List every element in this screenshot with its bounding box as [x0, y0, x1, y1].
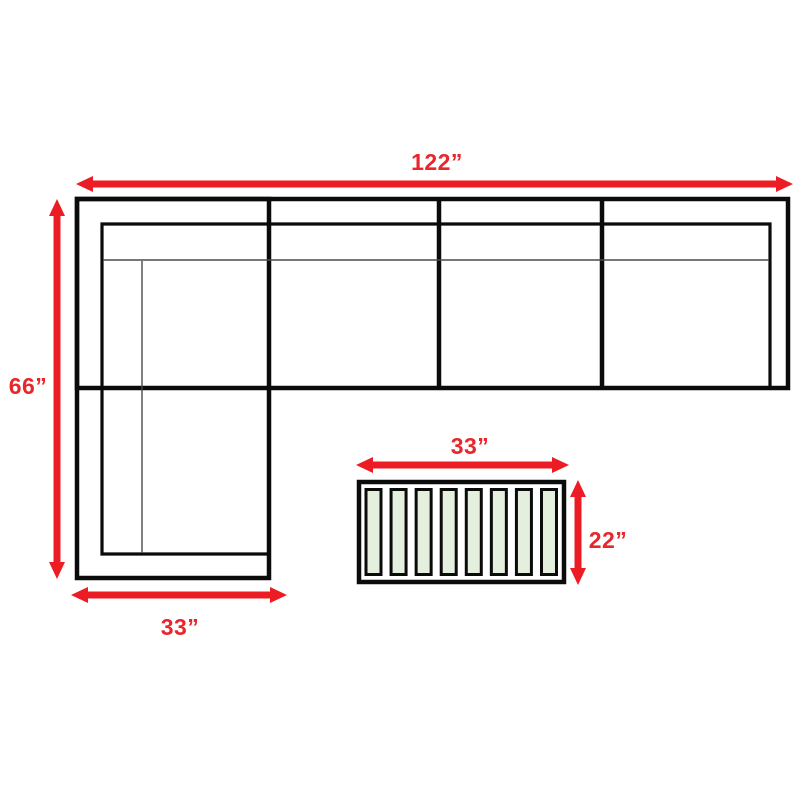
table-slat [366, 490, 381, 575]
arrow-head-right-icon [776, 176, 793, 192]
table-slat [466, 490, 481, 575]
sofa-body-outline [77, 199, 788, 388]
table-slat [416, 490, 431, 575]
arrow-head-right-icon [552, 457, 569, 473]
sofa-depth-label: 66” [2, 373, 54, 399]
table-slat [491, 490, 506, 575]
coffee-table [359, 482, 564, 582]
arrow-head-down-icon [570, 568, 586, 585]
arrow-head-left-icon [71, 587, 88, 603]
arrow-head-down-icon [49, 562, 65, 579]
furniture-dimension-diagram: 122” 66” 33” 33” 22” [0, 0, 800, 800]
table-slat [391, 490, 406, 575]
table-slat [541, 490, 556, 575]
table-slat [516, 490, 531, 575]
sofa-width-label: 122” [397, 149, 477, 175]
chaise-width-label: 33” [140, 614, 220, 640]
arrow-head-up-icon [49, 199, 65, 216]
table-depth-label: 22” [583, 527, 633, 553]
table-width-arrow [356, 457, 569, 473]
arrow-head-right-icon [270, 587, 287, 603]
arrow-head-left-icon [76, 176, 93, 192]
arrow-head-up-icon [570, 480, 586, 497]
chaise-width-arrow [71, 587, 287, 603]
table-width-label: 33” [430, 433, 510, 459]
table-slat [441, 490, 456, 575]
sofa-width-arrow [76, 176, 793, 192]
arrow-head-left-icon [356, 457, 373, 473]
diagram-linework [0, 0, 800, 800]
